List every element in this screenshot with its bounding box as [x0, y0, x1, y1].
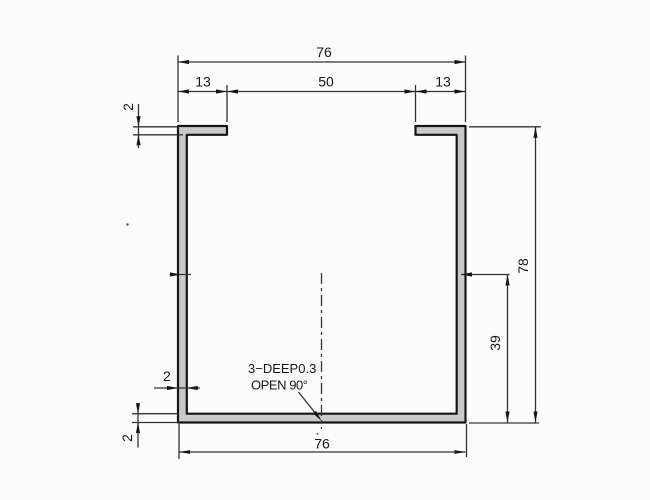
- svg-text:76: 76: [316, 44, 332, 60]
- svg-text:2: 2: [163, 368, 171, 384]
- svg-text:2: 2: [120, 103, 136, 111]
- svg-text:76: 76: [314, 436, 330, 452]
- svg-text:39: 39: [487, 335, 503, 351]
- svg-text:13: 13: [195, 74, 211, 90]
- svg-text:OPEN 90°: OPEN 90°: [251, 378, 308, 393]
- svg-text:2: 2: [119, 434, 135, 442]
- svg-text:50: 50: [318, 74, 334, 90]
- svg-text:13: 13: [435, 74, 451, 90]
- svg-text:78: 78: [515, 258, 531, 274]
- svg-text:3−DEEP0.3: 3−DEEP0.3: [248, 361, 316, 376]
